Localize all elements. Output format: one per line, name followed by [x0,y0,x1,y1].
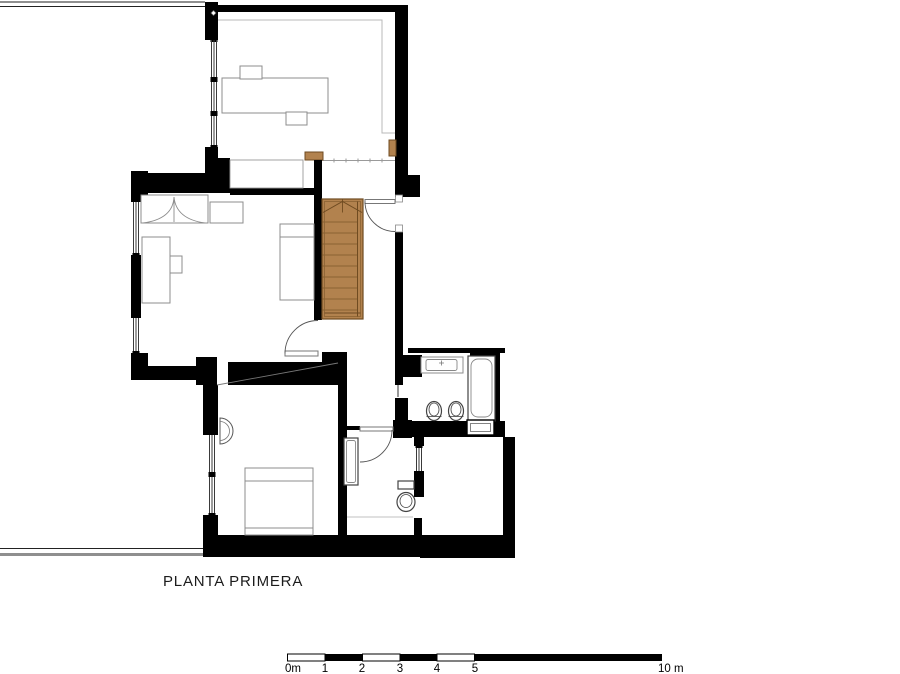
bathroom-door-leaf-open [397,385,399,397]
window-line [419,448,420,471]
bedroom-lower-window [209,433,216,515]
window-cap [209,433,216,435]
stair-base [322,199,363,319]
door-leaf [360,427,393,431]
room-bottom-right [420,420,515,558]
scale-segment-white [288,654,326,661]
window-line [136,202,137,255]
wall-segment [395,5,408,175]
bed [280,224,314,300]
scale-segment-white [437,654,474,661]
wall-window [467,420,494,435]
desk [142,237,170,303]
wall-segment [414,471,424,497]
wall-segment [196,357,217,385]
wall-segment [218,5,400,12]
wall-segment [205,147,218,193]
chair [286,112,307,125]
stair-void-railing [322,159,395,163]
scale-label-5: 5 [472,663,478,674]
study-room [199,2,421,197]
window-cap [133,351,140,353]
wall-segment [414,518,422,535]
window-line [216,40,217,147]
wall-segment [420,535,515,558]
terrace-edge-bottom-line [0,548,203,549]
window-cap [133,253,140,255]
door-swing-arc [285,321,318,354]
study-window [211,40,218,147]
door-leaf [285,351,318,356]
wall-segment [395,232,403,385]
wood-rail-piece [389,140,396,156]
scale-bar-segments [288,654,663,661]
window-line [133,202,134,255]
scale-label-2: 2 [359,663,365,674]
terrace-edge-top-gray [0,1,205,3]
wall-segment [205,2,218,40]
window-line [138,318,139,353]
door-jamb [396,225,403,232]
toilet-cistern [398,481,414,489]
wall-segment [148,173,205,193]
wall-segment [131,353,148,380]
scale-label-4: 4 [434,663,441,674]
dresser [210,202,243,223]
window-cap [416,446,423,448]
wall-segment [314,160,322,320]
wall-segment [403,355,422,377]
bed [245,468,313,535]
scale-label-10: 10 m [658,663,684,674]
scale-segment-white [362,654,399,661]
window-line [421,448,422,471]
door-leaf [365,200,395,204]
window-cap [133,316,140,318]
window-line [211,40,212,147]
door-swing-arc [360,430,392,462]
chair [170,256,182,273]
floor-plan-drawing: PLANTA PRIMERA 0m 1 2 3 4 5 10 m [0,0,900,674]
wall-segment [131,171,148,195]
chair [240,66,262,79]
scale-label-3: 3 [397,663,403,674]
bathtub [468,356,495,421]
desk [222,78,328,113]
window-line [136,318,137,353]
bathroom-small [344,420,424,535]
window-mullion [211,77,218,82]
wall-segment [395,163,403,195]
window-mullion [209,472,216,477]
scale-label-1: 1 [322,663,328,674]
staircase [314,160,363,320]
floor-plan-page: PLANTA PRIMERA 0m 1 2 3 4 5 10 m [0,0,900,674]
scale-segment-black [475,654,662,661]
door-swing-arc [365,202,395,232]
wall-segment [218,158,230,193]
wall-segment [395,398,408,423]
scale-segment-black [325,654,362,661]
scale-bar: 0m 1 2 3 4 5 10 m [285,654,684,674]
scale-label-0: 0m [285,663,301,674]
window-line [138,202,139,255]
plan-title: PLANTA PRIMERA [163,573,303,590]
wall-segment [203,385,218,435]
window-line [214,40,215,147]
window-mullion [211,111,218,116]
closet-recess [230,160,303,188]
wall-segment [347,426,360,430]
window-cap [209,513,216,515]
window-line [133,318,134,353]
room-bottom-right-walls [420,423,515,558]
wall-segment [230,188,318,195]
wood-rail-piece [305,152,323,160]
wall-segment [322,352,347,362]
bedroom-lower [203,362,420,557]
window-cap [211,145,218,147]
corridor [365,163,422,423]
bathroom-small-window [416,446,423,471]
wall-segment [503,437,515,548]
wall-segment [131,255,141,318]
door-jamb [396,195,403,202]
terrace-edge-bottom-gray [0,553,203,556]
wall-segment [403,178,420,193]
wall-segment [228,362,338,385]
wall-segment [203,535,420,557]
terrace-edge-lines [0,1,205,556]
window-cap [133,200,140,202]
window-line [416,448,417,471]
terrace-edge-top-line [0,6,205,7]
scale-segment-black [400,654,437,661]
